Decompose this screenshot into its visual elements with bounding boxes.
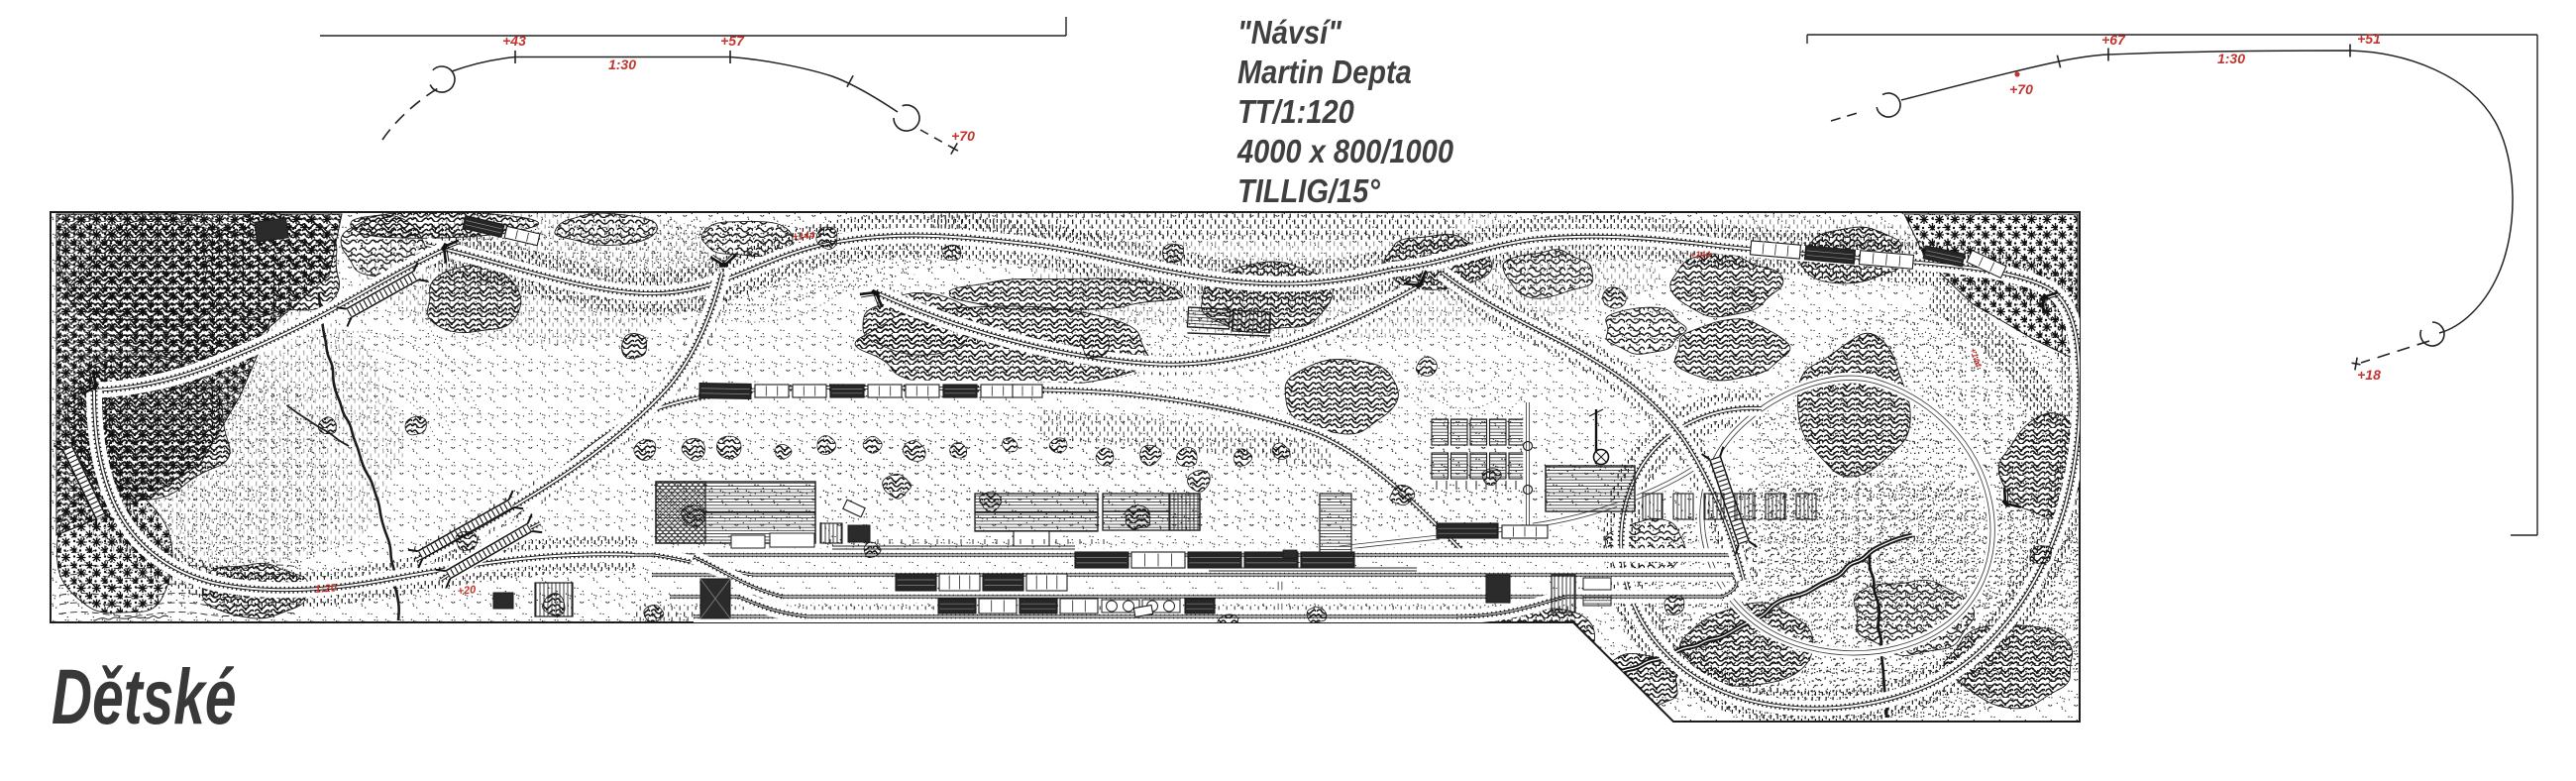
svg-text:TILLIG/15°: TILLIG/15°: [1237, 172, 1380, 209]
svg-text:+70: +70: [2009, 81, 2033, 97]
svg-text:1:20: 1:20: [314, 582, 338, 596]
svg-text:Dětské: Dětské: [52, 653, 237, 740]
svg-text:+51: +51: [2357, 31, 2381, 47]
svg-text:+43: +43: [502, 33, 526, 49]
svg-text:Martin Depta: Martin Depta: [1237, 54, 1412, 90]
svg-text:1:30: 1:30: [2217, 51, 2245, 66]
svg-text:+18: +18: [2357, 367, 2381, 383]
svg-text:+70: +70: [951, 128, 975, 144]
svg-text:+57: +57: [720, 33, 745, 49]
svg-text:+144: +144: [1690, 250, 1710, 260]
svg-text:4000 x 800/1000: 4000 x 800/1000: [1236, 133, 1453, 169]
svg-text:+67: +67: [2101, 32, 2126, 48]
svg-text:+20: +20: [457, 584, 478, 598]
svg-text:1:30: 1:30: [608, 56, 636, 72]
svg-text:+144: +144: [792, 230, 815, 243]
svg-text:TT/1:120: TT/1:120: [1237, 93, 1354, 130]
svg-text:"Návsí": "Návsí": [1237, 14, 1342, 51]
